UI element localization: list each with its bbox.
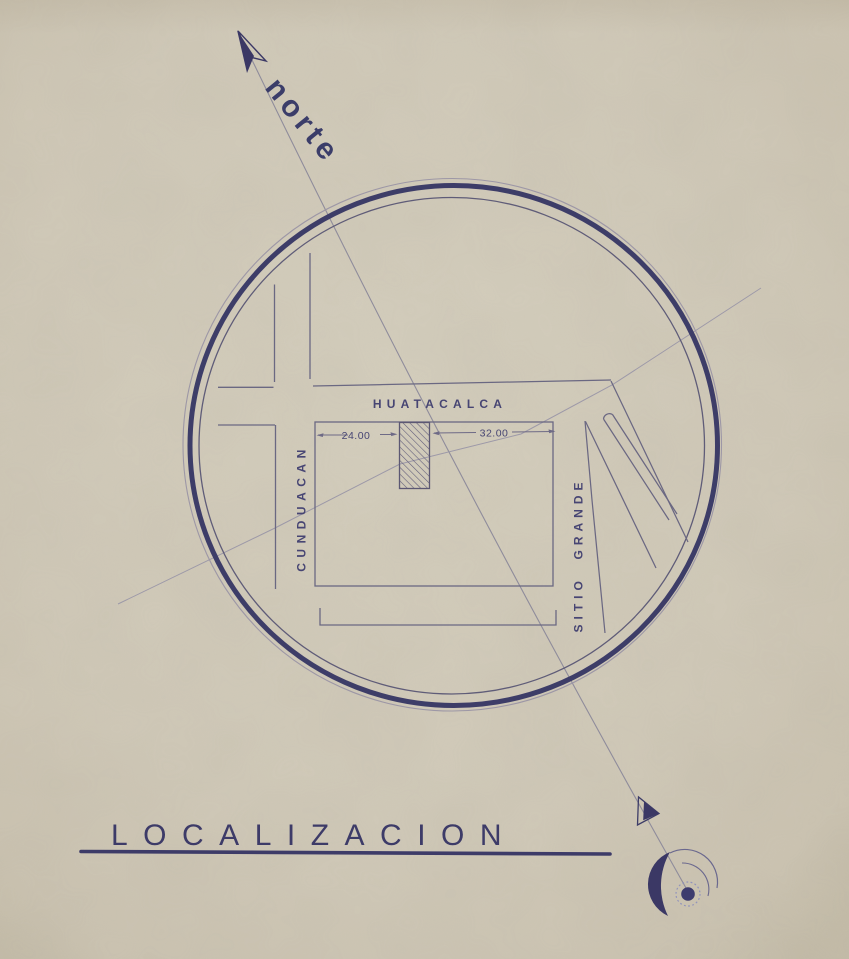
- svg-text:HUATACALCA: HUATACALCA: [373, 397, 507, 411]
- svg-text:24.00: 24.00: [342, 430, 371, 442]
- svg-text:32.00: 32.00: [480, 428, 509, 440]
- svg-text:CUNDUACAN: CUNDUACAN: [295, 444, 309, 572]
- svg-text:LOCALIZACION: LOCALIZACION: [111, 819, 517, 852]
- svg-text:SITIO GRANDE: SITIO GRANDE: [572, 477, 586, 632]
